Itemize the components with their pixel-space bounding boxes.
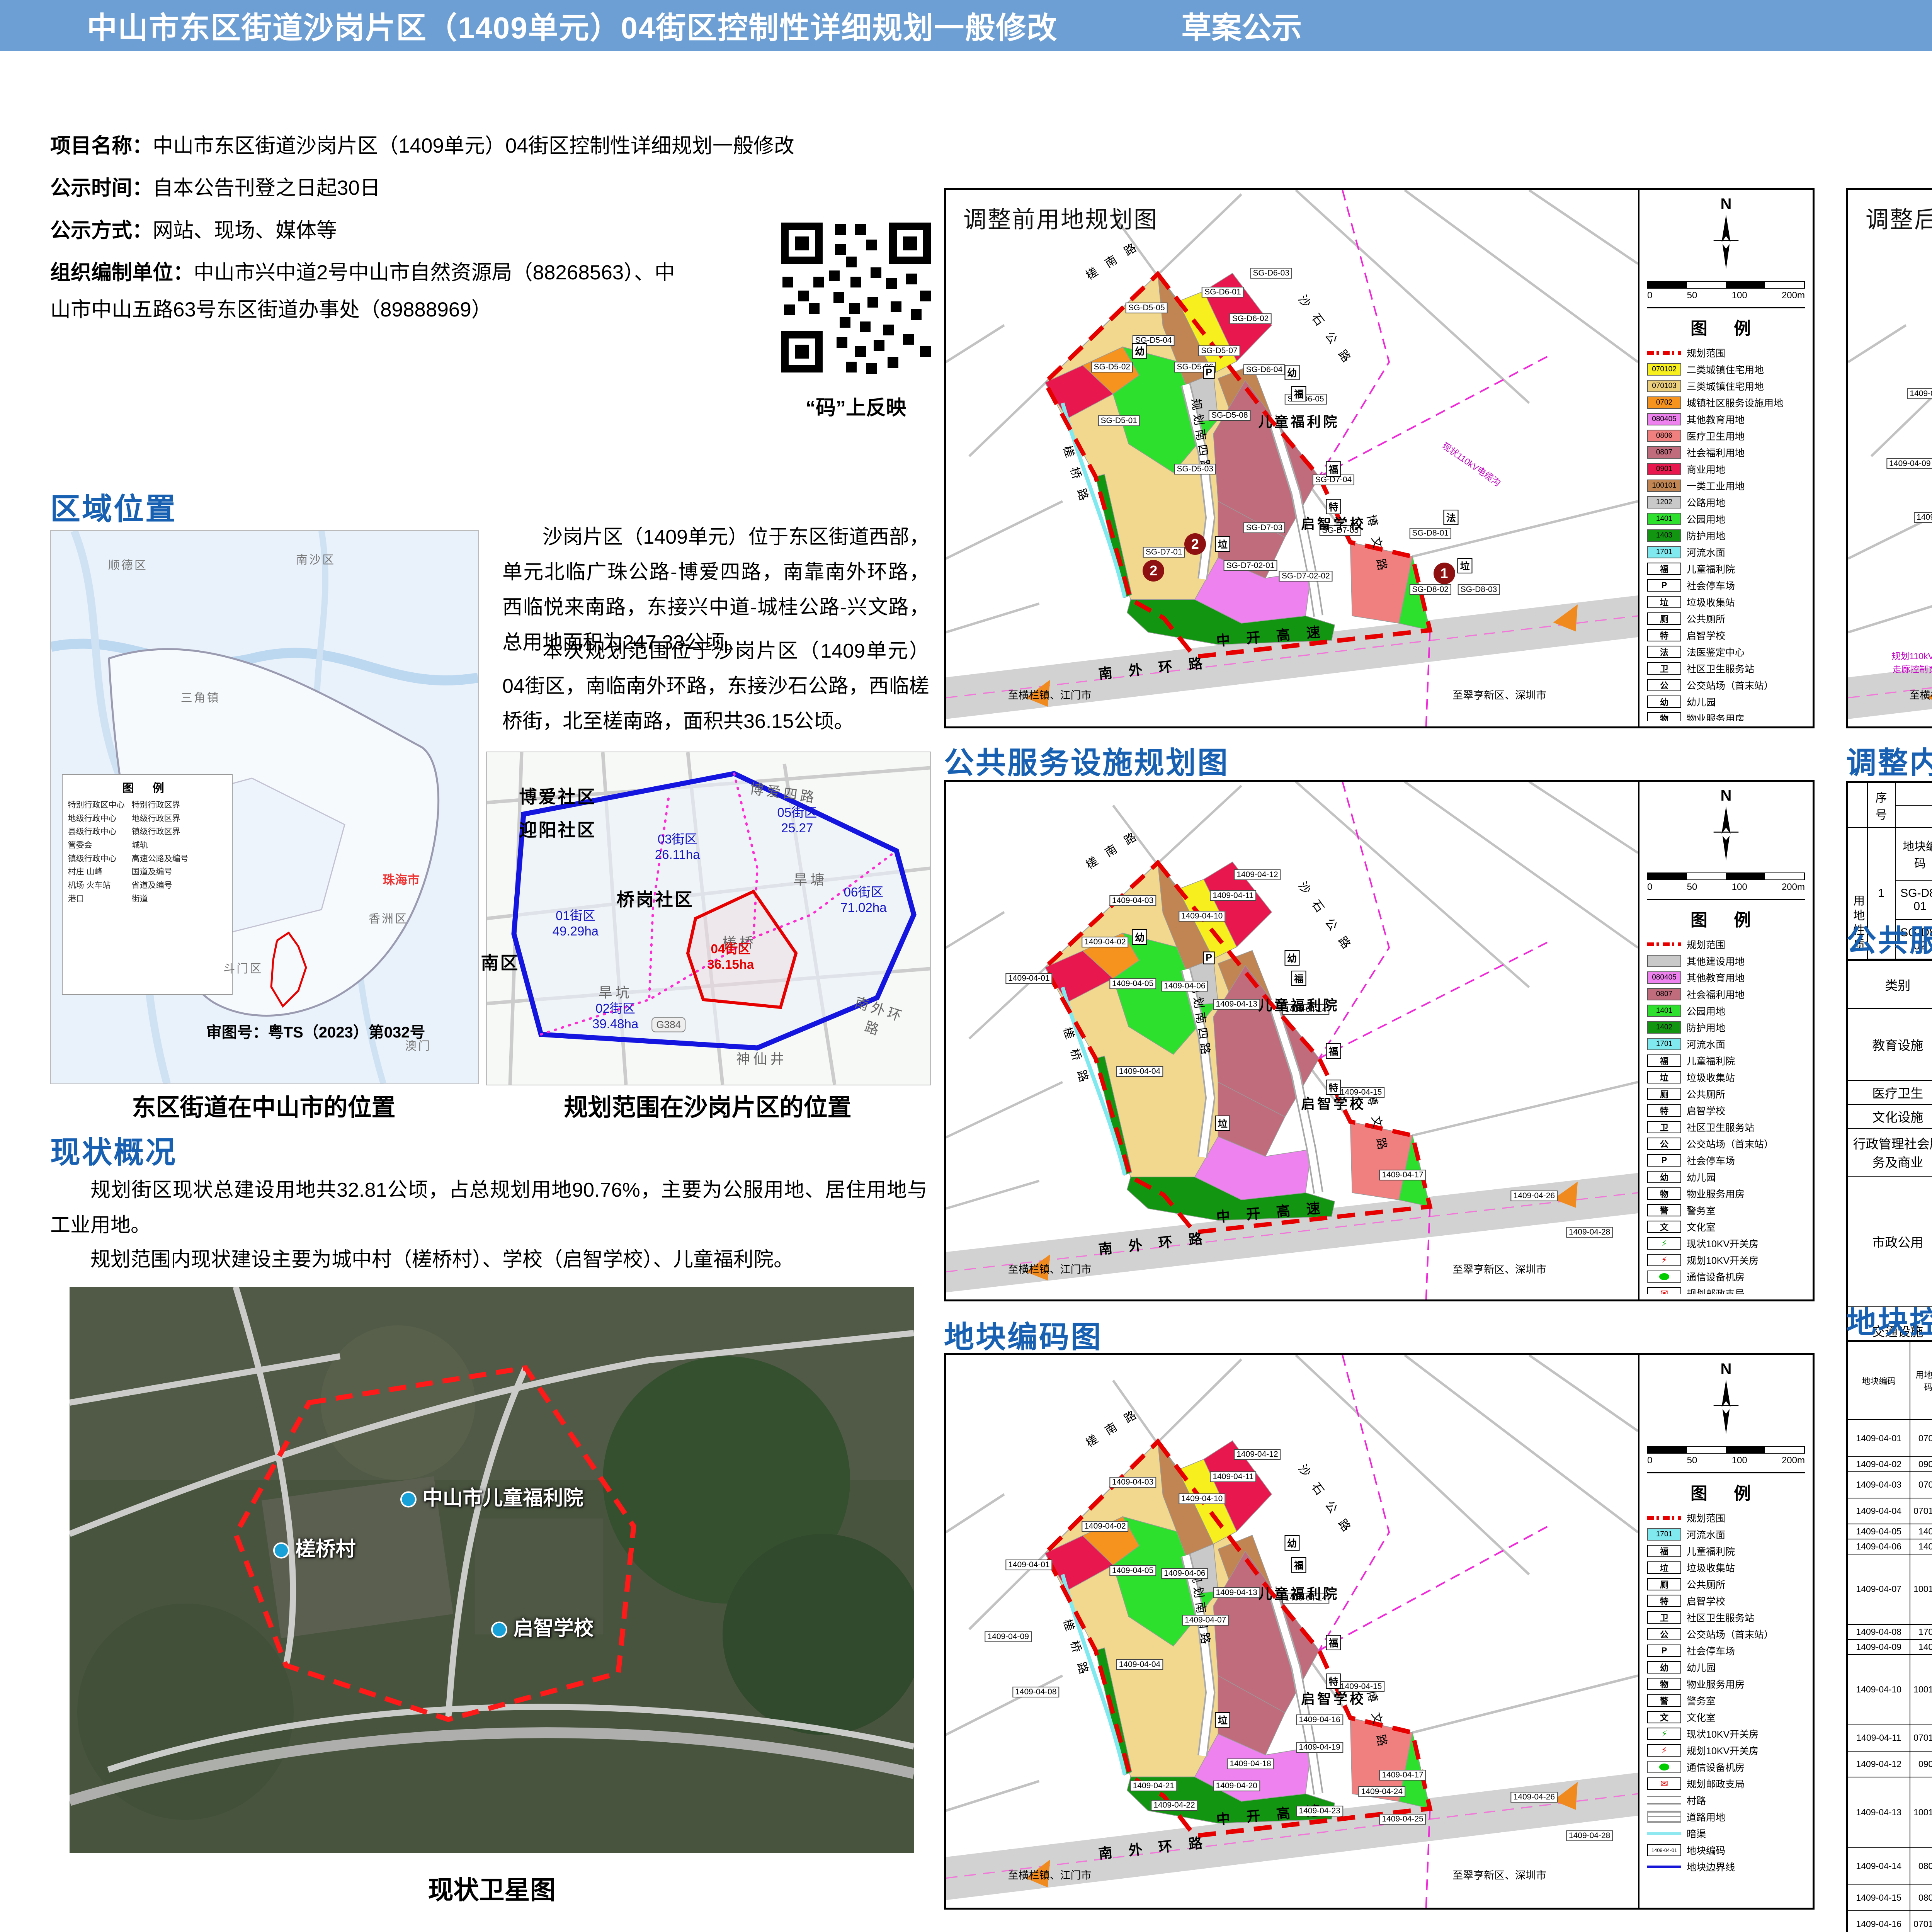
map-label: 槎 南 路 <box>1082 1404 1142 1450</box>
legend-chip-icon: 0806 <box>1647 430 1681 442</box>
legend-label: 公路用地 <box>1687 495 1725 509</box>
plot-code-label: SG-D5-08 <box>1209 410 1251 421</box>
table-cell: 文化设施 <box>1847 1104 1932 1128</box>
scale-50: 50 <box>1687 290 1697 301</box>
col-header: 调整内容 <box>1895 782 1932 806</box>
table-row: 1409-04-04070103三类城镇住宅用地62301.38——————12… <box>1847 1498 1932 1524</box>
legend-item: 警警务室 <box>1647 1203 1805 1217</box>
legend-item: 1701河流水面 <box>1647 1037 1805 1051</box>
district-map-caption: 规划范围在沙岗片区的位置 <box>486 1088 929 1122</box>
page-title: 中山市东区街道沙岗片区（1409单元）04街区控制性详细规划一般修改 <box>87 4 1058 47</box>
table-cell: 1409-04-03 <box>1847 1472 1910 1498</box>
legend-item: 080405其他教育用地 <box>1647 412 1805 426</box>
table-cell: 1409-04-12 <box>1847 1751 1910 1777</box>
legend-chip-icon: 福 <box>1647 1545 1681 1557</box>
legend-label: 河流水面 <box>1687 545 1725 559</box>
legend-label: 社区卫生服务站 <box>1687 1120 1754 1134</box>
map-label: 南 外 环 路 <box>1097 1831 1209 1863</box>
facilities-legend-list: 规划范围其他建设用地080405其他教育用地0807社会福利用地1401公园用地… <box>1647 935 1805 1294</box>
table-cell: 070103 <box>1910 1498 1932 1524</box>
legend-chip-icon <box>1647 1811 1681 1823</box>
legend-item: 特启智学校 <box>1647 628 1805 642</box>
info-line: 项目名称：中山市东区街道沙岗片区（1409单元）04街区控制性详细规划一般修改 <box>50 128 929 164</box>
plot-code-label: 1409-04-24 <box>1359 1786 1405 1797</box>
qr-caption: “码”上反映 <box>773 391 939 420</box>
plot-code-label: 1409-04-01 <box>1005 973 1052 984</box>
table-cell: 070103 <box>1910 1911 1932 1932</box>
scale-200: 200m <box>1782 290 1805 301</box>
plot-code-label: 1409-04-28 <box>1566 1227 1613 1238</box>
legend-label: 通信设备机房 <box>1687 1270 1745 1284</box>
table-cell: SG-D8-01 <box>1895 880 1932 920</box>
table-cell: 市政公用 <box>1847 1176 1932 1307</box>
map-label: 槎桥村 <box>273 1532 356 1561</box>
compass-n: N <box>1647 196 1805 213</box>
legend-chip-icon: 080405 <box>1647 413 1681 425</box>
legend-item: 厕公共厕所 <box>1647 612 1805 626</box>
map-label: 福 <box>1291 386 1306 401</box>
legend-chip-icon: 1403 <box>1647 529 1681 542</box>
legend-item: 1701河流水面 <box>1647 545 1805 559</box>
scale-bar: 0 50 100 200m <box>1647 1446 1805 1466</box>
map-label: 南沙区 <box>296 550 335 567</box>
section-title-region: 区域位置 <box>50 485 177 528</box>
legend-item: 文文化室 <box>1647 1710 1805 1724</box>
map-label: 槎 桥 路 <box>1060 443 1095 506</box>
legend-item: 1402防护用地 <box>1647 1020 1805 1034</box>
table-cell: 0807 <box>1910 1848 1932 1885</box>
legend-chip-icon <box>1647 1866 1681 1868</box>
table-cell: 1409-04-16 <box>1847 1911 1910 1932</box>
table-cell: 1409-04-02 <box>1847 1457 1910 1472</box>
legend-label: 河流水面 <box>1687 1527 1725 1541</box>
table-cell: 1409-04-07 <box>1847 1554 1910 1625</box>
table-row: 1409-04-020901商业用地9111.59≤3.0≥15≤5050——5… <box>1847 1457 1932 1472</box>
table-row: 用地性质1地块编码用地性质容积率绿地率 (%)建筑密度 (%)建筑限高 (m)地… <box>1847 828 1932 880</box>
legend-chip-icon: 特 <box>1647 1595 1681 1607</box>
map-label: 垃 <box>1215 1116 1230 1131</box>
legend-chip-icon: 垃 <box>1647 1071 1681 1083</box>
table-cell: 1409-04-04 <box>1847 1498 1910 1524</box>
satellite-caption: 现状卫星图 <box>70 1869 914 1906</box>
col-header: 地块编码 <box>1847 1341 1910 1420</box>
legend-chip-icon: ⚡ <box>1647 1728 1681 1740</box>
legend-label: 公园用地 <box>1687 1004 1725 1018</box>
legend-item: 法法医鉴定中心 <box>1647 645 1805 659</box>
legend-item: 规划范围 <box>1647 1511 1805 1525</box>
legend-label: 公交站场（首末站） <box>1687 678 1774 692</box>
legend-chip-icon: 厕 <box>1647 1088 1681 1100</box>
legend-item: 其他建设用地 <box>1647 954 1805 968</box>
legend-item: 1701河流水面 <box>1647 1527 1805 1541</box>
plot-code-label: 1409-04-08 <box>1914 512 1932 523</box>
legend-chip-icon <box>1647 1761 1681 1773</box>
map-label: 三角镇 <box>181 688 220 705</box>
coding-map-legend: N 0 50 100 200m 图 例 规划范围1701河流水面福儿童福利院垃垃… <box>1638 1355 1813 1908</box>
legend-chip-icon: P <box>1647 579 1681 592</box>
legend-chip-icon: 公 <box>1647 1138 1681 1150</box>
legend-label: 规划10KV开关房 <box>1687 1743 1759 1757</box>
legend-item: 0806医疗卫生用地 <box>1647 429 1805 443</box>
legend-label: 启智学校 <box>1687 628 1725 642</box>
legend-label: 社会福利用地 <box>1687 987 1745 1001</box>
legend-label: 现状10KV开关房 <box>1687 1727 1759 1741</box>
legend-title: 图 例 <box>1647 899 1805 931</box>
legend-item: ⚡规划10KV开关房 <box>1647 1743 1805 1757</box>
legend-label: 防护用地 <box>1687 529 1725 543</box>
legend-chip-icon: 幼 <box>1647 1661 1681 1673</box>
plot-code-label: 1409-04-02 <box>1082 937 1128 947</box>
legend-chip-icon: 物 <box>1647 712 1681 721</box>
header-bar: 中山市东区街道沙岗片区（1409单元）04街区控制性详细规划一般修改 草案公示 … <box>0 0 1932 51</box>
legend-chip-icon: 公 <box>1647 679 1681 691</box>
plot-code-label: 1409-04-22 <box>1151 1800 1197 1811</box>
legend-label: 警务室 <box>1687 1694 1716 1708</box>
map-label: 香洲区 <box>369 909 408 926</box>
plot-code-label: 1409-04-06 <box>1161 1568 1208 1579</box>
legend-chip-icon <box>1647 1270 1681 1283</box>
legend-label: 儿童福利院 <box>1687 1054 1735 1068</box>
plot-code-label: 1409-04-25 <box>1379 1814 1426 1825</box>
legend-item: 公公交站场（首末站） <box>1647 678 1805 692</box>
legend-item: 100101一类工业用地 <box>1647 479 1805 493</box>
compass-icon: N <box>1647 196 1805 279</box>
map-label: 垃 <box>1215 536 1230 552</box>
map-label: P <box>1203 366 1215 379</box>
plot-code-label: 1409-04-07 <box>1182 1615 1229 1626</box>
legend-label: 城镇社区服务设施用地 <box>1687 396 1783 410</box>
map-label: 审图号：粤TS（2023）第032号 <box>206 1020 425 1042</box>
legend-label: 河流水面 <box>1687 1037 1725 1051</box>
page: { "header":{ "title":"中山市东区街道沙岗片区（1409单元… <box>0 0 1932 1917</box>
legend-chip-icon: 厕 <box>1647 1578 1681 1590</box>
legend-label: 防护用地 <box>1687 1020 1725 1034</box>
legend-label: 暗渠 <box>1687 1827 1706 1840</box>
city-map-legend-title: 图 例 <box>68 779 226 796</box>
legend-item: 垃垃圾收集站 <box>1647 1070 1805 1084</box>
status-paragraph-2: 规划范围内现状建设主要为城中村（槎桥村）、学校（启智学校）、儿童福利院。 <box>50 1242 927 1277</box>
legend-item: 地块边界线 <box>1647 1860 1805 1874</box>
table-cell: 100101 <box>1910 1655 1932 1725</box>
coding-legend-list: 规划范围1701河流水面福儿童福利院垃垃圾收集站厕公共厕所特启智学校卫社区卫生服… <box>1647 1508 1805 1876</box>
table-row: 1409-04-061403广场用地3295.01≤1.0————12社会停车场… <box>1847 1539 1932 1554</box>
plot-code-label: SG-D8-02 <box>1409 584 1451 595</box>
legend-item: 垃垃圾收集站 <box>1647 1561 1805 1575</box>
legend-chip-icon: 080405 <box>1647 971 1681 984</box>
legend-chip-icon: 厕 <box>1647 612 1681 625</box>
legend-item: 文文化室 <box>1647 1220 1805 1234</box>
section-title-indicators: 地块控制指标一览表 <box>1846 1298 1932 1342</box>
info-line: 公示时间：自本公告刊登之日起30日 <box>50 170 692 206</box>
legend-label: 垃圾收集站 <box>1687 595 1735 609</box>
map-label: 福 <box>1291 1557 1306 1573</box>
table-row: 1409-04-150807社会福利用地19642.26≤1.5≥40≤3024… <box>1847 1885 1932 1911</box>
legend-label: 现状10KV开关房 <box>1687 1236 1759 1250</box>
plot-code-label: 1409-04-11 <box>1210 1471 1256 1482</box>
legend-chip-icon: 卫 <box>1647 1611 1681 1624</box>
city-map-legend: 图 例 特别行政区中心 地级行政中心 县级行政中心 管委会 镇级行政中心 村庄 … <box>62 774 233 995</box>
legend-item: 070102二类城镇住宅用地 <box>1647 362 1805 376</box>
legend-label: 规划范围 <box>1687 346 1725 360</box>
legend-item: 物物业服务用房 <box>1647 711 1805 721</box>
legend-chip-icon: 物 <box>1647 1678 1681 1690</box>
legend-chip-icon: 1401 <box>1647 1005 1681 1017</box>
legend-label: 启智学校 <box>1687 1594 1725 1608</box>
map-label: 神仙井 <box>736 1048 787 1068</box>
legend-item: 1403防护用地 <box>1647 529 1805 543</box>
plot-code-label: 1409-04-12 <box>1234 1449 1281 1460</box>
legend-label: 一类工业用地 <box>1687 479 1745 493</box>
legend-chip-icon: 0702 <box>1647 396 1681 409</box>
plot-code-label: SG-D6-04 <box>1243 364 1286 375</box>
before-legend-list: 规划范围070102二类城镇住宅用地070103三类城镇住宅用地0702城镇社区… <box>1647 343 1805 721</box>
table-cell: 1701 <box>1910 1624 1932 1639</box>
table-row: 类别 项目名称 数量 规模 所在地块 备注 <box>1847 960 1932 985</box>
legend-item: 警警务室 <box>1647 1694 1805 1708</box>
map-label: 斗门区 <box>223 959 263 976</box>
plot-code-label: 1409-04-12 <box>1234 869 1281 880</box>
legend-item: ⚡规划10KV开关房 <box>1647 1253 1805 1267</box>
legend-label: 规划范围 <box>1687 1511 1725 1525</box>
map-label: 特 <box>1326 1080 1341 1095</box>
plot-code-label: 1409-04-17 <box>1379 1170 1426 1180</box>
section-title-status: 现状概况 <box>50 1128 177 1172</box>
map-label: 中山市儿童福利院 <box>400 1482 583 1511</box>
map-label: 儿童福利院 <box>1258 411 1339 431</box>
map-label: 桥岗社区 <box>617 886 694 911</box>
legend-chip-icon: ⚡ <box>1647 1237 1681 1250</box>
legend-item: 特启智学校 <box>1647 1594 1805 1608</box>
map-label: 槎 桥 路 <box>1060 1617 1095 1680</box>
table-cell: 1409-04-08 <box>1847 1624 1910 1639</box>
legend-item: 1409-04-01地块编码 <box>1647 1843 1805 1857</box>
map-label: 2 <box>1184 533 1206 555</box>
legend-label: 幼儿园 <box>1687 695 1716 709</box>
legend-label: 儿童福利院 <box>1687 1544 1735 1558</box>
plot-code-label: 1409-04-03 <box>1109 1477 1156 1488</box>
section-title-services: 公共服务设施一览表 <box>1846 917 1932 960</box>
map-label: 福 <box>1326 461 1341 477</box>
legend-label: 其他建设用地 <box>1687 954 1745 968</box>
plot-code-label: 1409-04-04 <box>1116 1066 1163 1077</box>
legend-label: 医疗卫生用地 <box>1687 429 1745 443</box>
table-cell: 1409-04-09 <box>1847 1639 1910 1655</box>
scale-200: 200m <box>1782 1455 1805 1466</box>
plot-code-label: 1409-04-09 <box>1886 458 1932 469</box>
table-cell: 1401 <box>1910 1524 1932 1539</box>
legend-chip-icon: 1402 <box>1647 1021 1681 1034</box>
city-map-caption: 东区街道在中山市的位置 <box>50 1088 477 1122</box>
table-cell: 0702 <box>1910 1472 1932 1498</box>
after-map-title: 调整后用地规划图 <box>1866 201 1932 235</box>
legend-item: ✉规划邮政支局 <box>1647 1286 1805 1294</box>
legend-label: 公园用地 <box>1687 512 1725 526</box>
map-label: 幼 <box>1132 929 1147 945</box>
legend-chip-icon: 070103 <box>1647 380 1681 392</box>
table-row: 1409-04-10100101一类工业用地11814.561.0-4.010—… <box>1847 1655 1932 1725</box>
legend-item: P社会停车场 <box>1647 1644 1805 1658</box>
legend-item: 特启智学校 <box>1647 1104 1805 1117</box>
map-label: 至横栏镇、江门市 <box>1008 1867 1092 1882</box>
table-cell: 0807 <box>1910 1885 1932 1911</box>
map-label: 沙 石 公 路 <box>1295 1460 1358 1537</box>
table-cell: 1409-04-05 <box>1847 1524 1910 1539</box>
plot-code-label: 1409-04-01 <box>1907 388 1932 399</box>
legend-chip-icon: 特 <box>1647 1104 1681 1117</box>
legend-chip-icon: 1701 <box>1647 546 1681 558</box>
table-row: 行政管理社会服务及商业物业服务用房1≥500——1409-04-01附设式 <box>1847 1128 1932 1152</box>
map-label: 1 <box>1434 563 1455 584</box>
map-label: 幼 <box>1284 950 1299 966</box>
section-title-adjust: 调整内容及原因 <box>1846 739 1932 782</box>
legend-chip-icon: 物 <box>1647 1187 1681 1200</box>
table-row: 教育设施12班幼儿园2——31731409-04-01,1409-04-03独立… <box>1847 1009 1932 1032</box>
legend-item: 通信设备机房 <box>1647 1270 1805 1284</box>
legend-label: 物业服务用房 <box>1687 1187 1745 1201</box>
table-cell: 地块编码 <box>1895 828 1932 880</box>
plot-code-label: SG-D6-03 <box>1250 268 1293 279</box>
legend-label: 商业用地 <box>1687 462 1725 476</box>
status-paragraph-1: 规划街区现状总建设用地共32.81公顷，占总规划用地90.76%，主要为公服用地… <box>50 1173 927 1243</box>
table-cell: 1402 <box>1910 1639 1932 1655</box>
plot-code-label: SG-D7-02-01 <box>1224 560 1277 571</box>
map-label: 南 外 环 路 <box>1097 1227 1209 1259</box>
section-title-coding-map: 地块编码图 <box>944 1313 1102 1356</box>
plot-code-label: 1409-04-10 <box>1179 911 1225 922</box>
col-header: 类别 <box>1847 960 1932 1009</box>
legend-chip-icon: 法 <box>1647 646 1681 658</box>
legend-item: 0807社会福利用地 <box>1647 446 1805 459</box>
legend-label: 社会停车场 <box>1687 1644 1735 1658</box>
facilities-map-legend: N 0 50 100 200m 图 例 规划范围其他建设用地080405其他教育… <box>1638 782 1813 1299</box>
col-header: 调整前 <box>1895 805 1932 828</box>
legend-chip-icon: 文 <box>1647 1711 1681 1723</box>
table-cell: 1409-04-11 <box>1847 1725 1910 1751</box>
map-label: 南区 <box>481 949 519 975</box>
table-row: 文化设施文化室1——≥12001409-04-12附设式 <box>1847 1104 1932 1128</box>
plot-code-label: 1409-04-26 <box>1511 1792 1558 1803</box>
legend-item: ⚡现状10KV开关房 <box>1647 1727 1805 1741</box>
legend-item: 福儿童福利院 <box>1647 562 1805 576</box>
map-label: 幼 <box>1284 1535 1299 1551</box>
plot-code-label: 1409-04-26 <box>1511 1190 1558 1201</box>
map-label: 至横栏镇、江门市 <box>1909 687 1932 702</box>
project-info: 项目名称：中山市东区街道沙岗片区（1409单元）04街区控制性详细规划一般修改公… <box>50 128 929 333</box>
map-label: 启智学校 <box>1301 1688 1366 1708</box>
legend-item: 0807社会福利用地 <box>1647 987 1805 1001</box>
plot-code-label: SG-D5-03 <box>1174 464 1216 474</box>
legend-chip-icon: 1409-04-01 <box>1647 1844 1681 1856</box>
scale-100: 100 <box>1732 290 1747 301</box>
legend-chip-icon: 警 <box>1647 1204 1681 1216</box>
legend-item: 1401公园用地 <box>1647 512 1805 526</box>
city-map-legend-col1: 特别行政区中心 地级行政中心 县级行政中心 管委会 镇级行政中心 村庄 山峰 机… <box>68 799 125 906</box>
plot-code-label: 1409-04-03 <box>1109 895 1156 906</box>
legend-chip-icon: ✉ <box>1647 1287 1681 1294</box>
plot-code-label: 1409-04-18 <box>1227 1759 1274 1769</box>
legend-item: 暗渠 <box>1647 1827 1805 1840</box>
legend-label: 垃圾收集站 <box>1687 1561 1735 1575</box>
legend-item: 公公交站场（首末站） <box>1647 1137 1805 1151</box>
map-label: 沙 石 公 路 <box>1295 291 1358 368</box>
after-map-labels: 槎 南 路沙 石 公 路规划南四路槎 桥 路博 文 路中 开 高 速南 外 环 … <box>1848 190 1932 726</box>
scale-100: 100 <box>1732 882 1747 893</box>
map-label: 规划110kV电缆走廊 走廊控制宽度为4米 <box>1891 649 1932 675</box>
qr-code <box>775 216 937 379</box>
map-label: 儿童福利院 <box>1258 1583 1339 1603</box>
map-label: 博 文 路 <box>1364 1689 1393 1751</box>
legend-label: 村路 <box>1687 1793 1706 1807</box>
table-row: 1409-04-13100101一类工业用地5549.731.0-4.010—1… <box>1847 1777 1932 1848</box>
plot-code-label: 1409-04-02 <box>1082 1521 1128 1532</box>
map-label: 中 开 高 速 <box>1215 621 1327 650</box>
legend-item: 0702城镇社区服务设施用地 <box>1647 396 1805 410</box>
legend-item: ✉规划邮政支局 <box>1647 1777 1805 1791</box>
scale-bar: 0 50 100 200m <box>1647 281 1805 301</box>
plot-code-label: SG-D7-02-02 <box>1279 571 1333 582</box>
legend-label: 公交站场（首末站） <box>1687 1137 1774 1151</box>
legend-item: 1401公园用地 <box>1647 1004 1805 1018</box>
table-row: 1409-04-120901商业用地11482.96≤4.0≥15≤50100公… <box>1847 1751 1932 1777</box>
map-label: G384 <box>651 1017 685 1032</box>
legend-chip-icon <box>1647 1516 1681 1520</box>
legend-title: 图 例 <box>1647 307 1805 339</box>
map-label: 06街区 71.02ha <box>840 882 886 915</box>
map-label: 幼 <box>1132 343 1147 359</box>
map-label: 垃 <box>1215 1712 1230 1728</box>
legend-item: 规划范围 <box>1647 346 1805 360</box>
table-cell: 医疗卫生 <box>1847 1080 1932 1104</box>
legend-label: 其他教育用地 <box>1687 971 1745 985</box>
coding-panel: 槎 南 路沙 石 公 路规划南四路槎 桥 路博 文 路中 开 高 速南 外 环 … <box>944 1353 1815 1910</box>
table-cell: 1403 <box>1910 1539 1932 1554</box>
before-map-labels: 槎 南 路沙 石 公 路规划南四路槎 桥 路博 文 路中 开 高 速南 外 环 … <box>946 190 1638 726</box>
map-label: 特 <box>1326 1673 1341 1689</box>
legend-item: 福儿童福利院 <box>1647 1544 1805 1558</box>
legend-chip-icon: 垃 <box>1647 1561 1681 1574</box>
legend-chip-icon: 卫 <box>1647 1121 1681 1133</box>
plot-code-label: 1409-04-16 <box>1296 1714 1343 1725</box>
scale-200: 200m <box>1782 882 1805 893</box>
district-map-labels: 博爱社区迎阳社区桥岗社区南区博爱四路南外环路旱塘旱坑神仙井槎桥01街区 49.2… <box>487 752 930 1085</box>
plot-code-label: 1409-04-10 <box>1179 1493 1225 1504</box>
indicators-table: 地块编码用地代码用地性质用地面积 (m²)容积率绿地率 (%)建筑密度 (%)建… <box>1846 1340 1932 1932</box>
plot-code-label: 1409-04-13 <box>1213 1587 1260 1598</box>
legend-label: 规划10KV开关房 <box>1687 1253 1759 1267</box>
legend-label: 社区卫生服务站 <box>1687 662 1754 675</box>
legend-item: 卫社区卫生服务站 <box>1647 662 1805 675</box>
facilities-panel: 槎 南 路沙 石 公 路规划南四路槎 桥 路博 文 路中 开 高 速南 外 环 … <box>944 780 1815 1301</box>
legend-chip-icon: 0807 <box>1647 988 1681 1000</box>
legend-label: 规划范围 <box>1687 937 1725 951</box>
map-label: 儿童福利院 <box>1258 994 1339 1014</box>
map-label: P <box>1203 951 1215 964</box>
legend-item: 1202公路用地 <box>1647 495 1805 509</box>
map-label: 02街区 39.48ha <box>592 998 638 1031</box>
legend-item: 通信设备机房 <box>1647 1760 1805 1774</box>
plot-code-label: SG-D5-02 <box>1091 362 1133 372</box>
compass-icon: N <box>1647 787 1805 870</box>
plot-code-label: 1409-04-28 <box>1566 1830 1613 1841</box>
map-label: 福 <box>1326 1635 1341 1650</box>
legend-item: 卫社区卫生服务站 <box>1647 1611 1805 1624</box>
legend-title: 图 例 <box>1647 1472 1805 1504</box>
legend-label: 法医鉴定中心 <box>1687 645 1745 659</box>
map-label: 至翠亨新区、深圳市 <box>1452 1867 1546 1882</box>
map-label: 启智学校 <box>1301 513 1366 533</box>
draft-notice-label: 草案公示 <box>1181 4 1302 47</box>
legend-label: 启智学校 <box>1687 1104 1725 1117</box>
